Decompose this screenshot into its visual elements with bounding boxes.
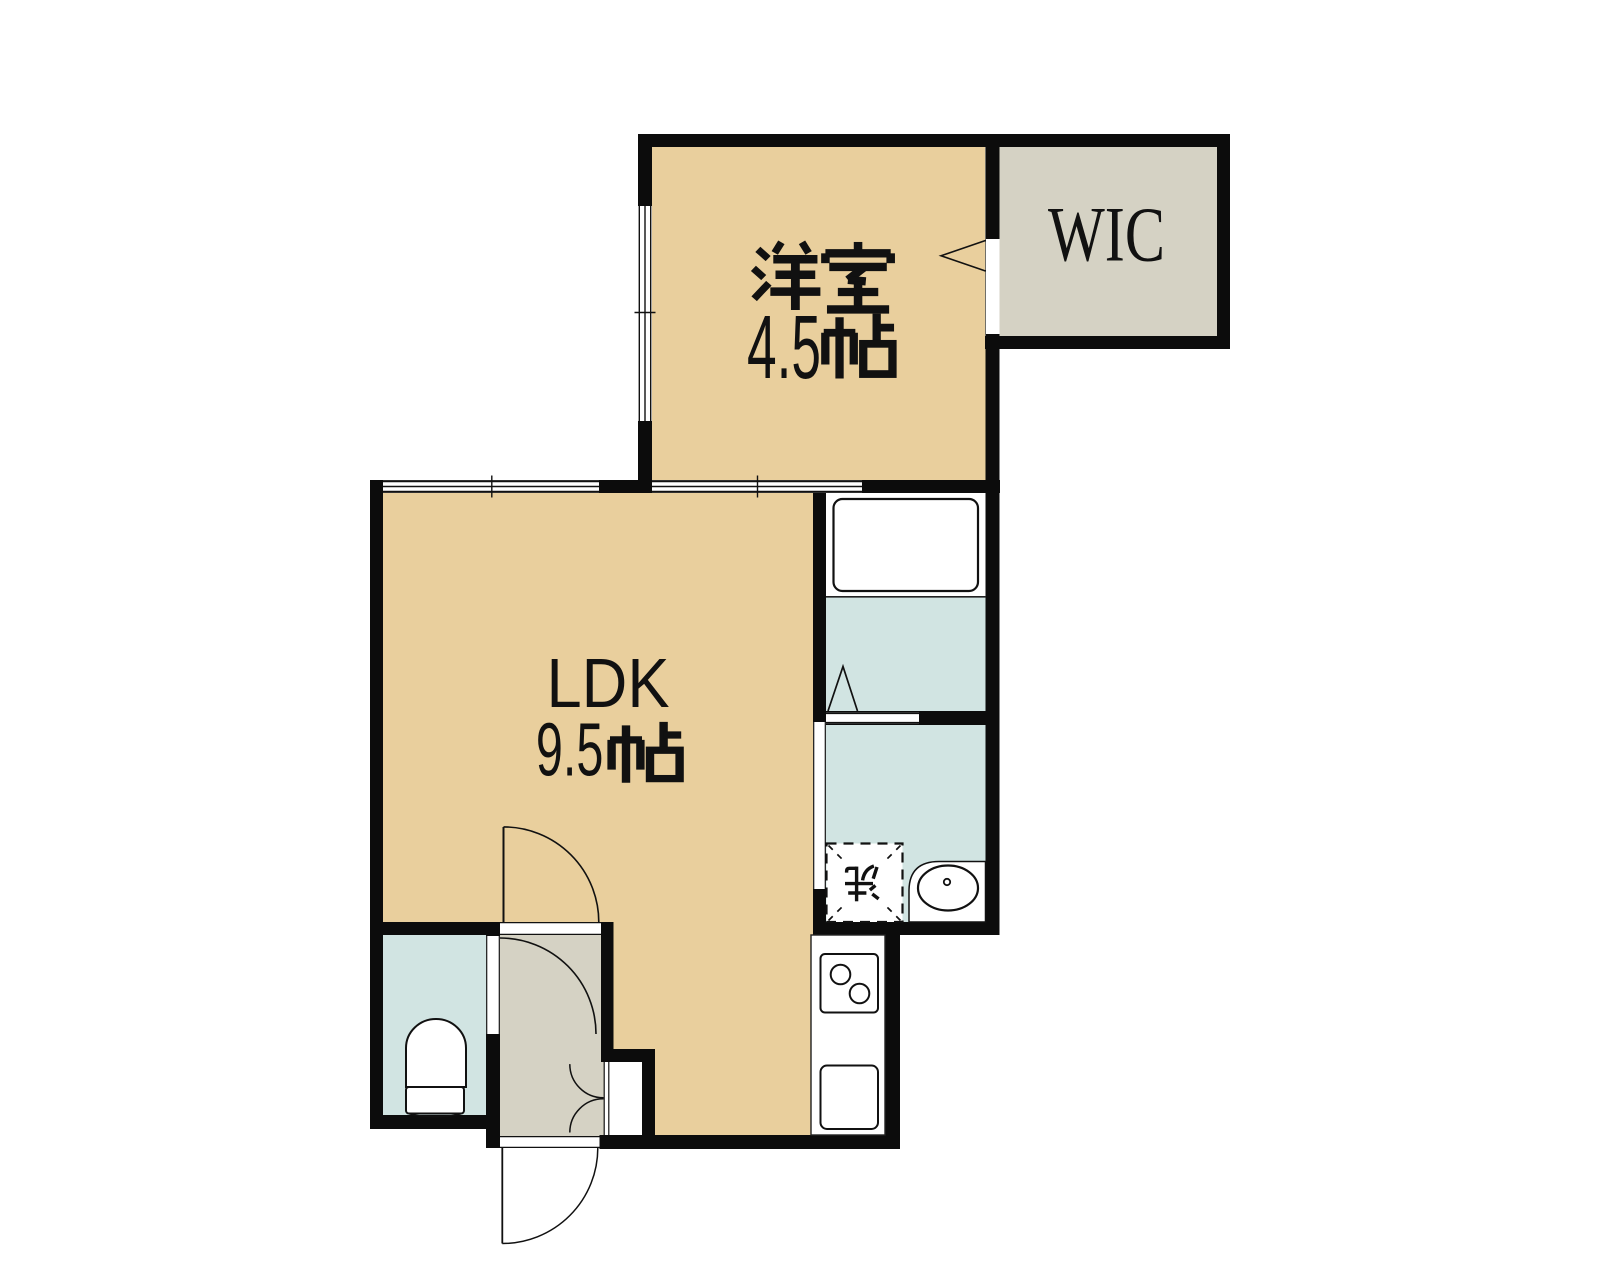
- svg-text:4.5: 4.5: [747, 298, 821, 398]
- svg-text:WIC: WIC: [1048, 191, 1165, 278]
- svg-text:9.5: 9.5: [536, 708, 604, 792]
